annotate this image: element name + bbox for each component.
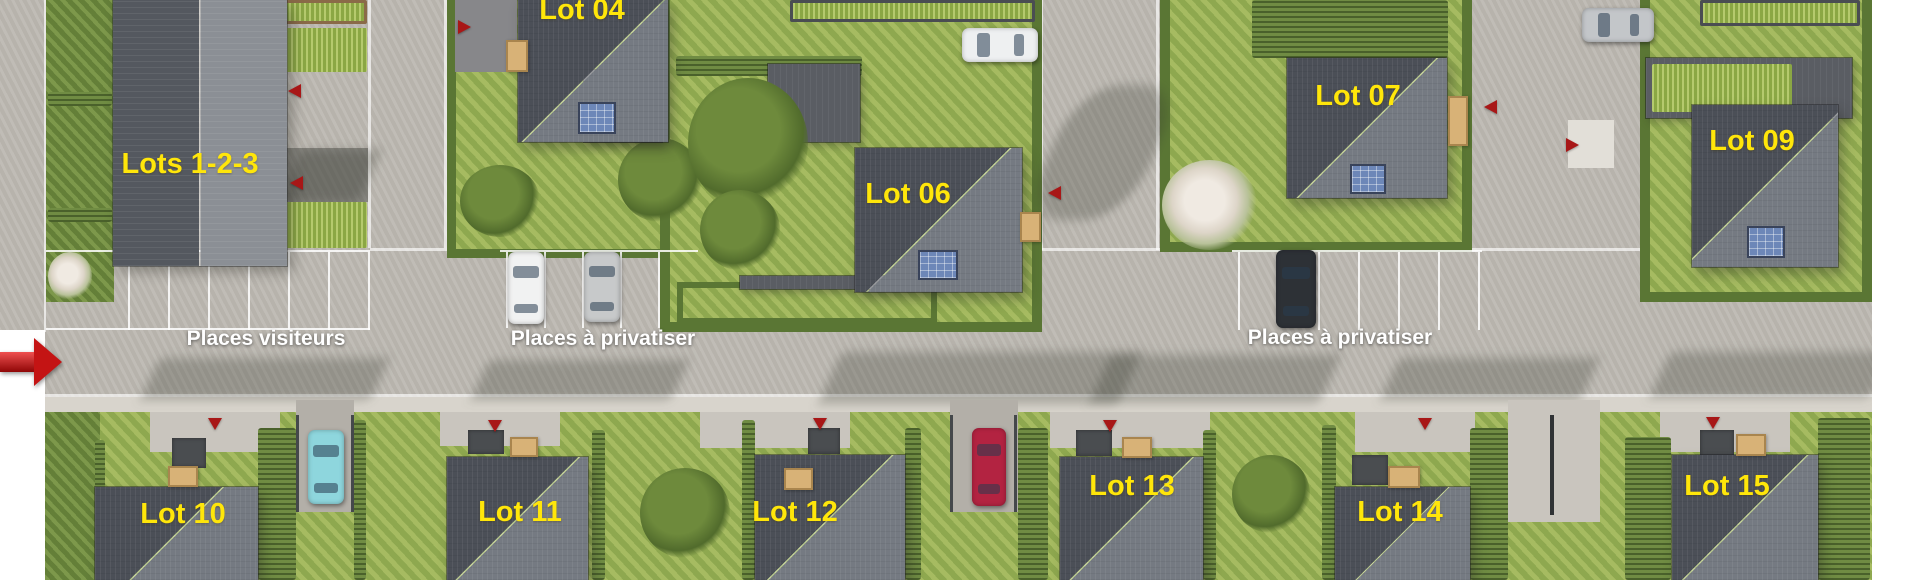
driveway-edge-1: [368, 0, 371, 248]
house-shadow: [1650, 352, 1890, 398]
hedge-divider: [592, 430, 605, 580]
site-entrance-arrow-icon: [0, 338, 62, 386]
lot-label-lot-11[interactable]: Lot 11: [478, 498, 562, 527]
hedge-lot-07-top: [1252, 0, 1448, 58]
car-windshield: [1282, 267, 1310, 279]
hedge-divider: [258, 428, 296, 580]
parking-line: [1478, 252, 1480, 330]
hedge-divider: [1818, 418, 1870, 580]
fence: [351, 415, 354, 512]
wood-box-lot-14: [1388, 466, 1420, 488]
walk-pad-lot-15: [1700, 430, 1734, 456]
car-rear-window: [1014, 34, 1024, 56]
tree-lot-06-b: [700, 190, 780, 270]
car-windshield: [313, 445, 338, 457]
fence: [296, 415, 299, 512]
garden-lot-10: [45, 412, 100, 580]
wood-box-lot-13: [1122, 437, 1152, 458]
parking-line: [288, 252, 290, 330]
fence-walkway: [1550, 415, 1554, 515]
tree-lot-04-a: [460, 165, 540, 237]
parking-line: [658, 252, 660, 328]
wood-box-lot-04: [506, 40, 528, 72]
white-car-visitor: [508, 252, 544, 324]
site-plan-canvas: Lots 1-2-3 Lot 04 Lot 06 Lot 07 Lot 09 L…: [0, 0, 1920, 580]
parking-line: [1318, 252, 1320, 330]
gray-car-top-right: [1582, 8, 1654, 42]
tree-bottom-a: [640, 468, 730, 558]
parking-line: [1238, 252, 1240, 330]
lot-label-lot-07[interactable]: Lot 07: [1315, 82, 1400, 111]
lot-entrance-arrow-icon: [458, 20, 471, 34]
walk-pad-lot-14: [1352, 455, 1388, 485]
wood-box-lot-12: [784, 468, 813, 490]
lot-label-lot-15[interactable]: Lot 15: [1684, 472, 1769, 501]
wood-box-lot-06: [1020, 212, 1041, 242]
parking-line: [1358, 252, 1360, 330]
hedge-divider: [905, 428, 921, 580]
car-rear-window: [978, 484, 1000, 494]
lot-entrance-arrow-icon: [208, 418, 222, 430]
green-roof-planter: [281, 0, 367, 24]
parking-label-visitors: Places visiteurs: [187, 328, 346, 349]
carport-shadow: [282, 148, 368, 202]
wood-box-lot-11: [510, 437, 538, 457]
car-windshield: [1598, 13, 1610, 36]
lot-entrance-arrow-icon: [1484, 100, 1497, 114]
fence: [950, 415, 953, 512]
parking-label-privatiser-east: Places à privatiser: [1248, 327, 1432, 348]
lot-label-lot-06[interactable]: Lot 06: [865, 180, 950, 209]
white-margin-right: [1872, 0, 1920, 580]
car-rear-window: [1283, 306, 1309, 315]
lot-entrance-arrow-icon: [1566, 138, 1579, 152]
entrance-arrow-head: [34, 338, 62, 386]
parking-line: [620, 252, 622, 328]
walkway-lot-14-15: [1508, 400, 1600, 522]
solar-panel-lot-04: [578, 102, 616, 134]
green-roof-strip-lot-09: [1700, 0, 1860, 26]
tree-lot-06-a: [688, 78, 808, 208]
flowering-tree-lot-07: [1162, 160, 1257, 250]
house-shadow: [1089, 355, 1340, 403]
lot-entrance-arrow-icon: [290, 176, 303, 190]
car-windshield: [589, 266, 614, 277]
parking-line: [1398, 252, 1400, 330]
teal-car: [308, 430, 344, 504]
lot-label-lot-12[interactable]: Lot 12: [752, 498, 837, 527]
hedge-patch-a: [281, 28, 367, 72]
lot-entrance-arrow-icon: [1048, 186, 1061, 200]
hedge-lots-1-2-3-a: [48, 92, 112, 106]
building-lots-1-2-3[interactable]: [113, 0, 287, 266]
car-windshield: [977, 33, 990, 56]
car-windshield: [977, 444, 1001, 456]
fence: [1014, 415, 1017, 512]
flower-bush: [48, 252, 92, 300]
lot-label-lot-14[interactable]: Lot 14: [1357, 498, 1442, 527]
white-car-top: [962, 28, 1038, 62]
wood-box-lot-10: [168, 466, 198, 487]
entrance-arrow-shaft: [0, 352, 36, 372]
hedge-divider: [1018, 428, 1048, 580]
lot-entrance-arrow-icon: [1418, 418, 1432, 430]
lot-entrance-arrow-icon: [1706, 417, 1720, 429]
house-shadow: [1381, 358, 1600, 400]
hedge-divider: [1470, 428, 1508, 580]
parking-line: [544, 252, 546, 328]
solar-panel-lot-06: [918, 250, 958, 280]
hedge-divider: [1625, 437, 1671, 580]
hedge-divider: [354, 420, 366, 580]
solar-panel-lot-09: [1747, 226, 1785, 258]
parking-line: [328, 252, 330, 330]
hedge-patch-b: [281, 202, 367, 248]
car-windshield: [513, 266, 538, 278]
parking-line: [1438, 252, 1440, 330]
wood-box-lot-15: [1736, 434, 1766, 456]
car-rear-window: [314, 483, 338, 493]
silver-car-visitor: [584, 252, 620, 322]
lot-label-lot-04[interactable]: Lot 04: [539, 0, 624, 25]
car-rear-window: [514, 304, 538, 313]
lot-entrance-arrow-icon: [1103, 420, 1117, 432]
walk-pad-lot-10: [172, 438, 206, 468]
lot-label-lot-10[interactable]: Lot 10: [140, 500, 225, 529]
wood-box-lot-07: [1448, 96, 1468, 146]
walk-pad-lot-12: [808, 428, 840, 454]
hedge-divider: [1322, 425, 1336, 580]
parking-label-privatiser-west: Places à privatiser: [511, 328, 695, 349]
lot-entrance-arrow-icon: [488, 420, 502, 432]
black-car: [1276, 250, 1316, 328]
lot-entrance-arrow-icon: [288, 84, 301, 98]
green-roof-garage-top: [790, 0, 1035, 22]
lot-label-lots-1-2-3[interactable]: Lots 1-2-3: [122, 150, 259, 179]
walk-pad-lot-13: [1076, 430, 1112, 456]
hedge-divider: [1203, 430, 1216, 580]
hedge-lots-1-2-3-b: [48, 208, 112, 222]
red-car: [972, 428, 1006, 506]
entrance-pad-lot-14: [1355, 412, 1475, 452]
parking-line: [1232, 250, 1482, 252]
house-shadow: [471, 360, 689, 400]
walk-pad-lot-11: [468, 430, 504, 454]
parking-line: [368, 252, 370, 330]
lot-label-lot-13[interactable]: Lot 13: [1089, 472, 1174, 501]
lot-label-lot-09[interactable]: Lot 09: [1709, 127, 1794, 156]
car-rear-window: [1630, 14, 1639, 36]
tree-bottom-b: [1232, 455, 1310, 533]
car-rear-window: [590, 302, 614, 311]
house-shadow: [141, 358, 390, 400]
solar-panel-lot-07: [1350, 164, 1386, 194]
lot-entrance-arrow-icon: [813, 418, 827, 430]
